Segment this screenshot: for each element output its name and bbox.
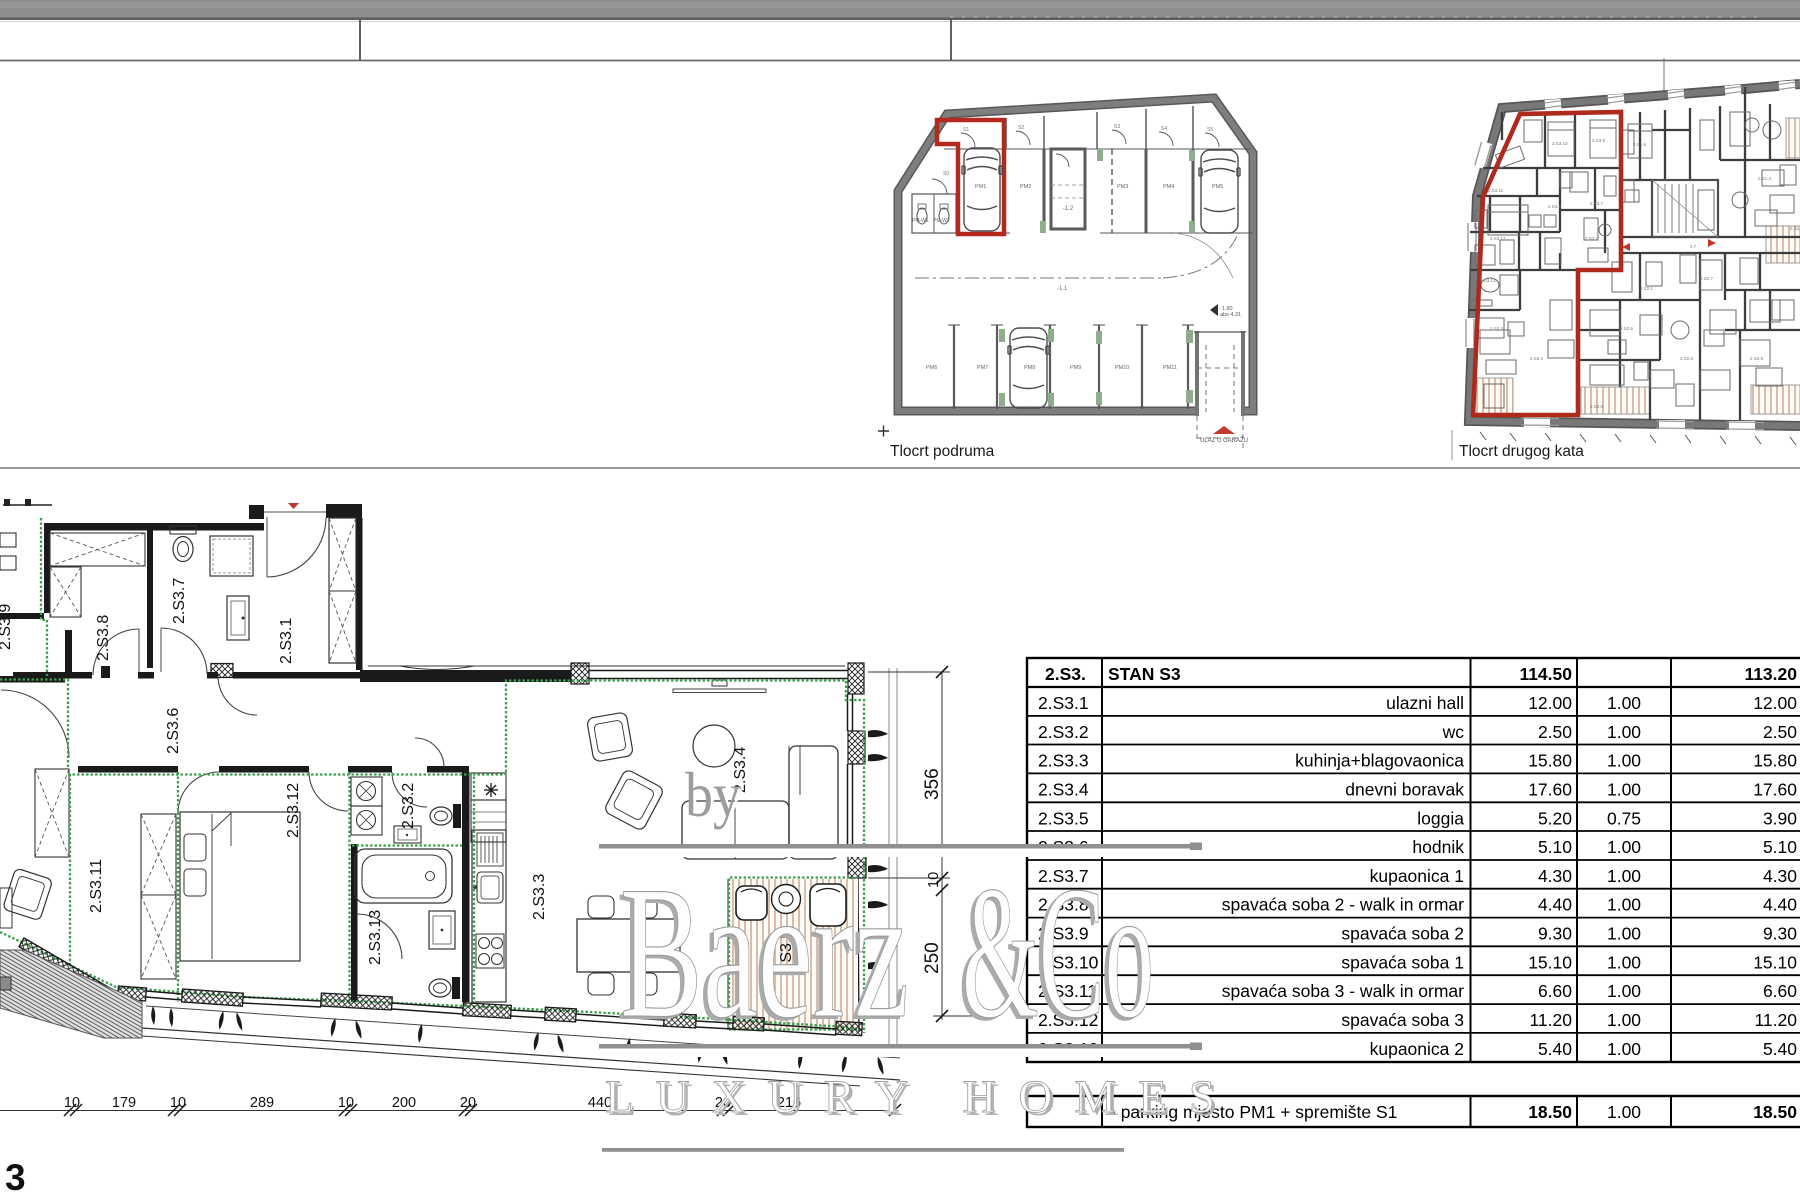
svg-text:SPREMIŠTE: SPREMIŠTE <box>1190 96 1220 103</box>
svg-text:2.S3.12: 2.S3.12 <box>285 783 302 838</box>
svg-text:15.10: 15.10 <box>1528 952 1572 972</box>
svg-text:hodnik: hodnik <box>1412 837 1464 857</box>
svg-text:5.10: 5.10 <box>1538 837 1572 857</box>
svg-text:2.S3.4: 2.S3.4 <box>1038 779 1089 799</box>
svg-text:250: 250 <box>922 942 943 974</box>
svg-text:kupaonica 1: kupaonica 1 <box>1370 866 1464 886</box>
svg-text:17.60: 17.60 <box>1528 779 1572 799</box>
svg-text:179: 179 <box>112 1095 136 1111</box>
svg-text:2.S3.4: 2.S3.4 <box>1530 356 1544 361</box>
svg-text:2.50: 2.50 <box>1538 722 1572 742</box>
svg-text:12.00: 12.00 <box>1528 693 1572 713</box>
svg-text:4.30: 4.30 <box>1763 866 1797 886</box>
svg-text:Baerz: Baerz <box>620 848 909 1058</box>
svg-text:2.S3.10: 2.S3.10 <box>1552 141 1568 146</box>
svg-text:6.60: 6.60 <box>1763 981 1797 1001</box>
svg-text:PM3: PM3 <box>1117 184 1128 190</box>
svg-text:2.S3.7: 2.S3.7 <box>1590 201 1604 206</box>
svg-text:PM4: PM4 <box>1163 184 1174 190</box>
svg-text:1.00: 1.00 <box>1607 779 1641 799</box>
svg-text:12.00: 12.00 <box>1753 693 1797 713</box>
svg-text:PM10: PM10 <box>1115 365 1129 371</box>
svg-text:PM11: PM11 <box>1163 365 1177 371</box>
svg-text:2.S3.11: 2.S3.11 <box>88 859 105 913</box>
svg-text:18.50: 18.50 <box>1753 1102 1797 1122</box>
svg-text:2.S3.11: 2.S3.11 <box>1488 188 1504 193</box>
svg-text:&Co: &Co <box>962 848 1154 1058</box>
svg-text:9.30: 9.30 <box>1538 924 1572 944</box>
svg-text:2.S3.9: 2.S3.9 <box>0 604 14 650</box>
svg-text:2.S2.6: 2.S2.6 <box>1620 326 1634 331</box>
svg-text:spavaća soba 2: spavaća soba 2 <box>1341 924 1464 944</box>
svg-text:wc: wc <box>1442 722 1465 742</box>
svg-text:5.10: 5.10 <box>1763 837 1797 857</box>
svg-text:ulazni hall: ulazni hall <box>1386 693 1464 713</box>
svg-text:114.50: 114.50 <box>1519 664 1572 684</box>
svg-text:spavaća soba 1: spavaća soba 1 <box>1341 952 1464 972</box>
svg-text:2.S3.13: 2.S3.13 <box>367 910 384 965</box>
svg-text:4.40: 4.40 <box>1763 895 1797 915</box>
svg-text:1.00: 1.00 <box>1607 693 1641 713</box>
svg-text:4.40: 4.40 <box>1538 895 1572 915</box>
svg-text:10: 10 <box>338 1095 354 1111</box>
svg-text:2.S3.3: 2.S3.3 <box>1038 751 1089 771</box>
svg-text:PM1: PM1 <box>975 184 986 190</box>
svg-text:Tlocrt podruma: Tlocrt podruma <box>890 443 995 460</box>
svg-text:2.S1.6: 2.S1.6 <box>1633 142 1647 147</box>
svg-text:2.S3.6: 2.S3.6 <box>165 708 182 754</box>
svg-text:PM2: PM2 <box>1020 184 1031 190</box>
svg-text:2.S3.8: 2.S3.8 <box>95 615 112 661</box>
svg-text:10: 10 <box>64 1095 80 1111</box>
svg-text:2.S3.13: 2.S3.13 <box>1480 278 1496 283</box>
svg-text:PM-W2: PM-W2 <box>933 218 950 224</box>
svg-text:dnevni boravak: dnevni boravak <box>1345 779 1464 799</box>
svg-text:15.10: 15.10 <box>1753 952 1797 972</box>
svg-text:5.20: 5.20 <box>1538 808 1572 828</box>
svg-text:3.90: 3.90 <box>1763 808 1797 828</box>
svg-text:2.S2.7: 2.S2.7 <box>1700 276 1714 281</box>
svg-text:1.00: 1.00 <box>1607 866 1641 886</box>
svg-text:S2: S2 <box>1018 125 1024 131</box>
svg-text:-1.2: -1.2 <box>1063 206 1074 212</box>
svg-text:2.7: 2.7 <box>1690 244 1697 249</box>
svg-text:2.S3.6: 2.S3.6 <box>1548 204 1562 209</box>
svg-text:SPREMIŠTE: SPREMIŠTE <box>1120 101 1150 108</box>
svg-text:2.S1.3: 2.S1.3 <box>1758 176 1772 181</box>
svg-text:6.60: 6.60 <box>1538 981 1572 1001</box>
svg-text:2.50: 2.50 <box>1763 722 1797 742</box>
svg-text:10: 10 <box>170 1095 186 1111</box>
svg-text:9.30: 9.30 <box>1763 924 1797 944</box>
svg-text:20: 20 <box>460 1095 476 1111</box>
svg-text:ULAZ U GARAŽU: ULAZ U GARAŽU <box>1200 436 1248 444</box>
svg-text:PM9: PM9 <box>1070 365 1081 371</box>
svg-text:2.S3.3: 2.S3.3 <box>1490 326 1504 331</box>
svg-text:1.00: 1.00 <box>1607 895 1641 915</box>
svg-text:15.80: 15.80 <box>1753 751 1797 771</box>
svg-text:2.S3.2: 2.S3.2 <box>1038 722 1089 742</box>
svg-text:2.S3.1: 2.S3.1 <box>1038 693 1089 713</box>
svg-text:2.S3.3: 2.S3.3 <box>531 874 548 920</box>
svg-text:PM-W1: PM-W1 <box>912 218 929 224</box>
svg-text:1.00: 1.00 <box>1607 1010 1641 1030</box>
svg-text:2.S3.5: 2.S3.5 <box>1038 808 1089 828</box>
svg-text:abs 4.31: abs 4.31 <box>1220 312 1241 318</box>
svg-text:by: by <box>685 759 741 830</box>
svg-text:2.S2.9: 2.S2.9 <box>1750 356 1764 361</box>
svg-text:5.40: 5.40 <box>1763 1039 1797 1059</box>
svg-text:289: 289 <box>250 1095 274 1111</box>
svg-text:2.S3.9: 2.S3.9 <box>1592 138 1606 143</box>
svg-text:S1: S1 <box>963 127 969 133</box>
svg-text:2.S3.: 2.S3. <box>1045 664 1086 684</box>
svg-text:1.00: 1.00 <box>1607 1102 1641 1122</box>
svg-text:PM7: PM7 <box>977 365 988 371</box>
svg-text:2.S3.5: 2.S3.5 <box>1590 404 1604 409</box>
svg-text:356: 356 <box>922 768 943 800</box>
svg-text:PM5: PM5 <box>1212 184 1223 190</box>
svg-text:2.S1.2: 2.S1.2 <box>1790 226 1800 231</box>
svg-text:STAN S3: STAN S3 <box>1108 664 1181 684</box>
svg-text:1.00: 1.00 <box>1607 722 1641 742</box>
svg-text:spavaća soba 3: spavaća soba 3 <box>1341 1010 1464 1030</box>
svg-text:200: 200 <box>392 1095 416 1111</box>
svg-text:113.20: 113.20 <box>1744 664 1797 684</box>
svg-text:Tlocrt drugog kata: Tlocrt drugog kata <box>1459 443 1584 460</box>
svg-text:5.40: 5.40 <box>1538 1039 1572 1059</box>
svg-text:11.20: 11.20 <box>1530 1010 1573 1030</box>
svg-text:PM6: PM6 <box>926 365 937 371</box>
svg-text:kupaonica 2: kupaonica 2 <box>1370 1039 1464 1059</box>
svg-text:15.80: 15.80 <box>1528 751 1572 771</box>
svg-text:1.00: 1.00 <box>1607 751 1641 771</box>
svg-text:1.00: 1.00 <box>1607 981 1641 1001</box>
svg-text:S3: S3 <box>1114 124 1120 130</box>
svg-text:2.S3.7: 2.S3.7 <box>171 578 188 624</box>
svg-text:S5: S5 <box>1207 127 1213 133</box>
svg-text:S0: S0 <box>943 171 949 177</box>
svg-text:18.50: 18.50 <box>1528 1102 1572 1122</box>
svg-text:S4: S4 <box>1161 126 1167 132</box>
svg-text:kuhinja+blagovaonica: kuhinja+blagovaonica <box>1295 751 1464 771</box>
svg-text:1.00: 1.00 <box>1607 837 1641 857</box>
svg-text:2.S3.2: 2.S3.2 <box>400 783 417 829</box>
svg-text:2.S2.1: 2.S2.1 <box>1640 286 1654 291</box>
svg-text:1.00: 1.00 <box>1607 924 1641 944</box>
svg-text:2.S3.1: 2.S3.1 <box>1585 236 1599 241</box>
svg-text:-1.1: -1.1 <box>1057 286 1068 292</box>
svg-text:11.20: 11.20 <box>1755 1010 1798 1030</box>
svg-text:1.00: 1.00 <box>1607 1039 1641 1059</box>
svg-text:10: 10 <box>926 872 942 888</box>
svg-text:2.S2.8: 2.S2.8 <box>1680 356 1694 361</box>
svg-text:PM8: PM8 <box>1024 365 1035 371</box>
svg-text:2.S3.12: 2.S3.12 <box>1490 236 1506 241</box>
svg-text:spavaća soba 3 - walk in ormar: spavaća soba 3 - walk in ormar <box>1222 981 1464 1001</box>
svg-text:spavaća soba 2 - walk in ormar: spavaća soba 2 - walk in ormar <box>1222 895 1464 915</box>
svg-text:loggia: loggia <box>1417 808 1464 828</box>
svg-text:17.60: 17.60 <box>1753 779 1797 799</box>
svg-text:2.S3.1: 2.S3.1 <box>278 618 295 664</box>
svg-text:3: 3 <box>5 1157 26 1198</box>
svg-text:1.00: 1.00 <box>1607 952 1641 972</box>
svg-text:4.30: 4.30 <box>1538 866 1572 886</box>
svg-text:0.75: 0.75 <box>1607 808 1641 828</box>
